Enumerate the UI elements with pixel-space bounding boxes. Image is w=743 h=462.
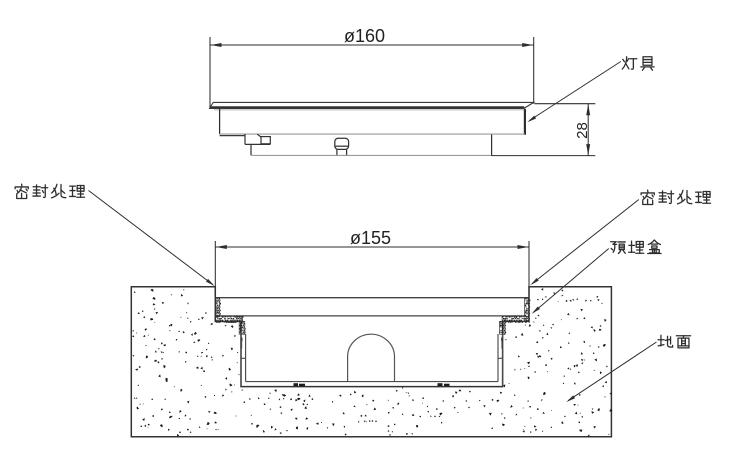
svg-text:ø155: ø155 [350, 228, 391, 248]
svg-text:ø160: ø160 [344, 26, 385, 46]
svg-text:28: 28 [574, 122, 591, 139]
